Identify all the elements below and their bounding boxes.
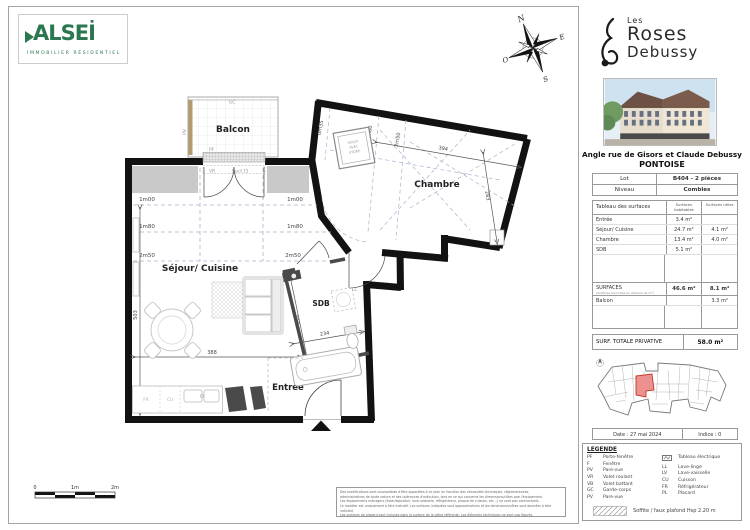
legend-abbr: PL: [662, 491, 678, 498]
table-row: Chambre 13.4 m² 4.0 m²: [593, 235, 737, 245]
legend-label: Placard: [678, 491, 737, 498]
row-name: Entrée: [593, 215, 666, 224]
keyplan-compass-icon: [597, 358, 604, 367]
clef-icon: [597, 14, 623, 72]
ll-tag: LL: [352, 287, 357, 293]
legend-label: Pare-vue: [603, 495, 662, 502]
date-table: Date : 27 mai 2024 Indice : 0: [592, 428, 738, 440]
row-hab: 24.7 m²: [666, 225, 702, 234]
svg-text:1m00: 1m00: [139, 197, 155, 203]
svg-text:0m35: 0m35: [317, 120, 325, 135]
table-row: SDB 5.1 m²: [593, 245, 737, 255]
entry-door: [303, 380, 341, 431]
room-label-sejour: Séjour/ Cuisine: [162, 263, 238, 274]
svg-text:1m80: 1m80: [139, 224, 155, 230]
compass-o-label: O: [501, 55, 510, 65]
svg-text:2m50: 2m50: [285, 253, 301, 259]
privative-table: SURF. TOTALE PRIVATIVE 58.0 m²: [592, 334, 738, 350]
legend-label: Volet roulant: [603, 475, 662, 482]
pare-vue-panel: [189, 100, 193, 155]
privative-label: SURF. TOTALE PRIVATIVE: [593, 335, 683, 349]
room-label-sdb: SDB: [312, 299, 330, 308]
balcony: GC PV Balcon: [182, 97, 278, 157]
sejour-height-labels: 1m00 1m80 2m50 1m00 1m80 2m50: [139, 197, 303, 259]
compass-rose-icon: N E S O: [489, 2, 578, 95]
balcon-label: Balcon: [593, 296, 666, 305]
svg-text:2m: 2m: [111, 485, 119, 491]
lot-table: Lot B404 - 2 pièces Niveau Combles: [592, 173, 738, 196]
compass-n-label: N: [515, 13, 527, 25]
pf-tag: PF: [209, 147, 215, 153]
sofa: [243, 277, 283, 334]
indice-label: Indice : 0: [682, 429, 737, 439]
toilet: [344, 325, 360, 349]
niveau-label: Niveau: [593, 185, 657, 195]
svg-text:1m80: 1m80: [287, 224, 303, 230]
row-ut: 4.1 m²: [701, 225, 737, 234]
dining-table: [143, 301, 201, 359]
row-hab: 3.4 m²: [666, 215, 702, 224]
velux-window: VELUX AVEC STORE: [333, 127, 375, 169]
cu-tag: CU: [167, 397, 173, 403]
row-name: Chambre: [593, 235, 666, 244]
row-name: Séjour/ Cuisine: [593, 225, 666, 234]
lot-value: B404 - 2 pièces: [657, 174, 737, 184]
legend-title: LEGENDE: [587, 447, 737, 453]
row-name: SDB: [593, 245, 666, 254]
legend-label: Cuisson: [678, 478, 737, 485]
balcon-value: 3.3 m²: [701, 296, 737, 305]
legend: LEGENDE PFPorte-fenêtre FFenêtre PVPare-…: [582, 443, 742, 521]
vr-tag: VR: [209, 169, 215, 175]
key-plan: [590, 354, 734, 426]
soffite-label: Soffite / faux plafond Hsp 2.20 m: [633, 508, 716, 514]
date-label: Date : 27 mai 2024: [593, 429, 682, 439]
row-ut: 4.0 m²: [701, 235, 737, 244]
sejour-furniture: [133, 218, 283, 360]
sdb-door: [297, 241, 329, 264]
low-ceiling-zone-left: [132, 166, 198, 193]
entree-closets: [225, 386, 266, 412]
room-label-balcon: Balcon: [216, 125, 250, 135]
building-footprint: [598, 363, 726, 415]
surfaces-table: Tableau des surfaces Surfaces habitables…: [592, 200, 738, 299]
kitchen-sink: [184, 390, 219, 402]
entrance-marker-icon: [311, 421, 331, 432]
info-panel: Les Roses Debussy Angle rue de Gisors et…: [578, 6, 744, 524]
table-row: Entrée 3.4 m²: [593, 215, 737, 225]
garde-corps-tag: GC: [229, 100, 236, 106]
disclaimer-line: Le mobilier est uniquement à titre indic…: [340, 504, 562, 513]
svg-text:503: 503: [133, 310, 139, 320]
lot-row: Lot B404 - 2 pièces: [593, 174, 737, 184]
bathtub: [290, 346, 362, 386]
duct-shaft: [490, 230, 504, 245]
row-hab: 5.1 m²: [666, 245, 702, 254]
logo-debussy: Debussy: [627, 44, 698, 61]
col-habitables: Surfaces habitables: [666, 201, 702, 214]
sdb-fixtures: LL: [282, 270, 362, 387]
compass-e-label: E: [557, 33, 566, 43]
balcony-door: PF VR Seuil 15: [203, 147, 265, 197]
legend-label: Tableau électrique: [678, 455, 737, 465]
kitchen: FR CU: [133, 386, 223, 413]
privative-value: 58.0 m²: [683, 335, 737, 349]
svg-text:283: 283: [483, 191, 490, 201]
legend-abbr: CU: [662, 478, 678, 485]
legend-abbr: PV: [587, 468, 603, 475]
legend-abbr: GC: [587, 488, 603, 495]
svg-text:394: 394: [438, 145, 448, 153]
compass-s-label: S: [542, 75, 550, 84]
balcon-table: Balcon 3.3 m²: [592, 295, 738, 329]
disclaimer-line: Des modifications sont susceptibles d'êt…: [340, 490, 562, 495]
svg-text:234: 234: [320, 330, 330, 338]
scale-bar: 0 1m 2m: [33, 485, 119, 498]
niveau-row: Niveau Combles: [593, 184, 737, 195]
low-ceiling-zone-right: [267, 166, 309, 193]
legend-abbr: PF: [587, 455, 603, 462]
legend-label: Lave-vaisselle: [678, 471, 737, 478]
building-photo: [603, 78, 717, 146]
project-logo: Les Roses Debussy: [597, 14, 727, 76]
svg-text:388: 388: [207, 350, 217, 356]
legend-label: Porte-fenêtre: [603, 455, 662, 462]
row-hab: 13.4 m²: [666, 235, 702, 244]
lot-label: Lot: [593, 174, 657, 184]
svg-text:1m: 1m: [71, 485, 79, 491]
legend-abbr: VR: [587, 475, 603, 482]
pare-vue-tag: PV: [182, 128, 188, 135]
project-address: Angle rue de Gisors et Claude Debussy PO…: [581, 150, 743, 169]
table-row: Séjour/ Cuisine 24.7 m² 4.1 m²: [593, 225, 737, 235]
row-ut: [701, 215, 737, 224]
disclaimer-box: Des modifications sont susceptibles d'êt…: [336, 487, 566, 517]
svg-text:0: 0: [33, 485, 36, 491]
legend-abbr: LV: [662, 471, 678, 478]
surfaces-title: Tableau des surfaces: [593, 201, 666, 214]
niveau-value: Combles: [657, 185, 737, 195]
disclaimer-line: Les surfaces de placard sont incluses da…: [340, 513, 562, 518]
svg-text:1m00: 1m00: [287, 197, 303, 203]
legend-label: Pare-vue: [603, 468, 662, 475]
logo-roses: Roses: [627, 25, 698, 44]
fr-tag: FR: [143, 397, 149, 403]
balcon-row: Balcon 3.3 m²: [593, 296, 737, 306]
chambre-ceiling-dashes: [322, 108, 518, 242]
legend-label: Garde-corps: [603, 488, 662, 495]
legend-abbr: PV: [587, 495, 603, 502]
row-ut: [701, 245, 737, 254]
room-label-chambre: Chambre: [414, 180, 459, 190]
svg-text:2m50: 2m50: [139, 253, 155, 259]
col-utiles: Surfaces utiles: [701, 201, 737, 214]
address-line2: PONTOISE: [581, 160, 743, 169]
electrical-panel-icon: [662, 455, 678, 465]
address-line1: Angle rue de Gisors et Claude Debussy: [581, 150, 743, 159]
soffite-hatch-icon: [593, 506, 627, 516]
